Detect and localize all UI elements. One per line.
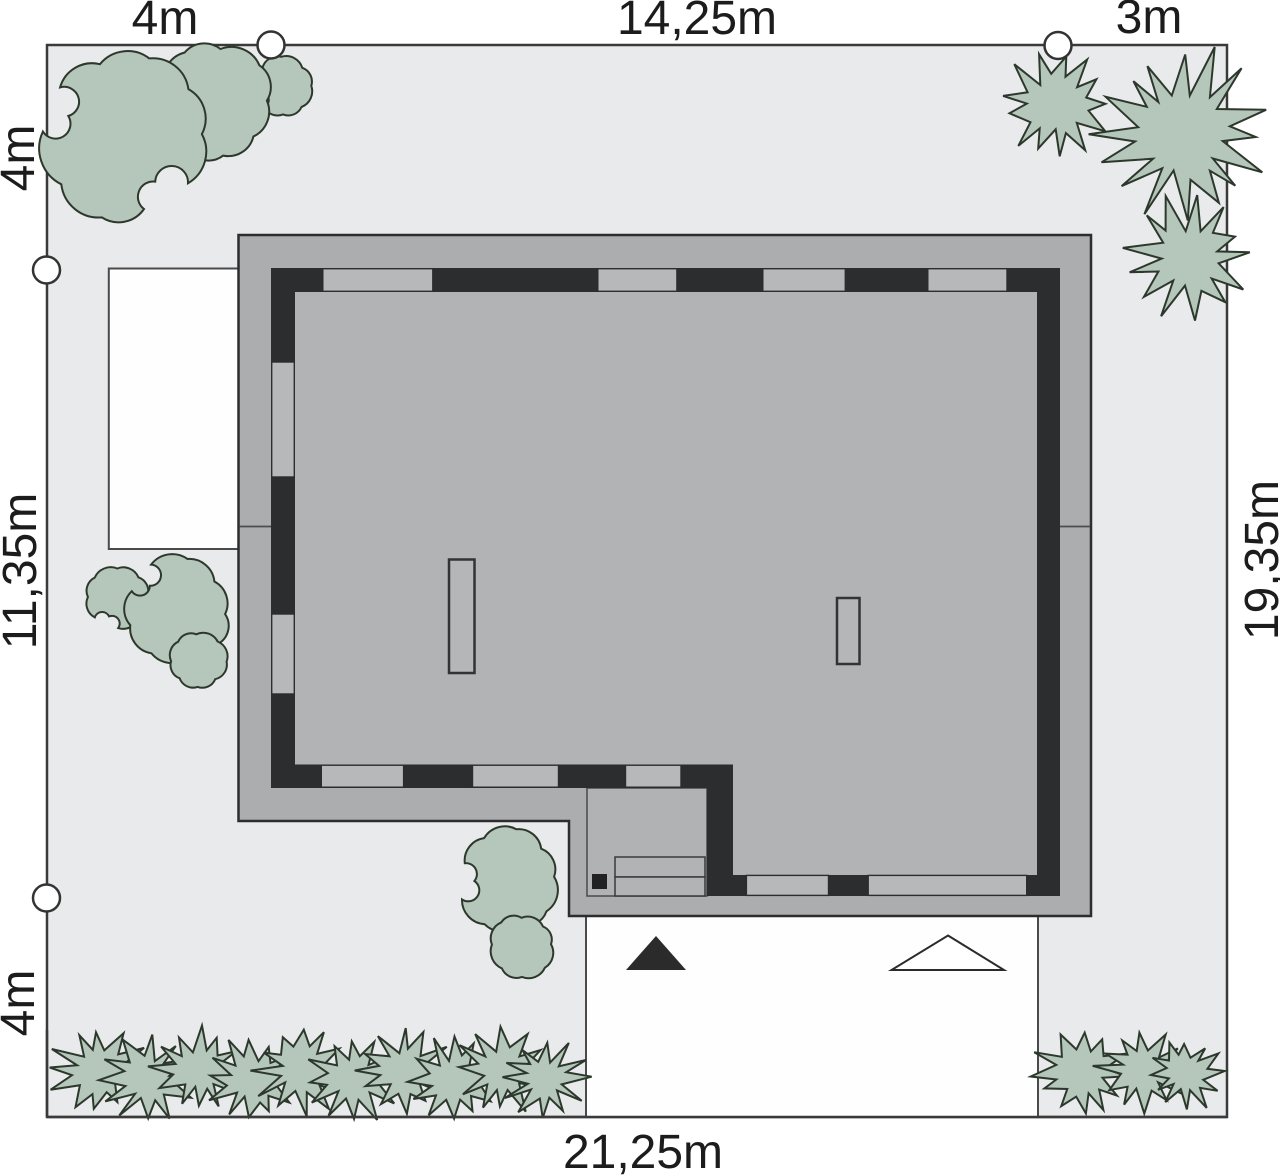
svg-text:21,25m: 21,25m [563, 1126, 723, 1176]
svg-text:3m: 3m [1116, 0, 1183, 44]
svg-text:19,35m: 19,35m [1236, 480, 1280, 640]
svg-text:14,25m: 14,25m [617, 0, 777, 45]
svg-text:4m: 4m [0, 970, 45, 1037]
svg-text:4m: 4m [132, 0, 199, 45]
svg-text:4m: 4m [0, 125, 45, 192]
svg-text:11,35m: 11,35m [0, 493, 47, 650]
